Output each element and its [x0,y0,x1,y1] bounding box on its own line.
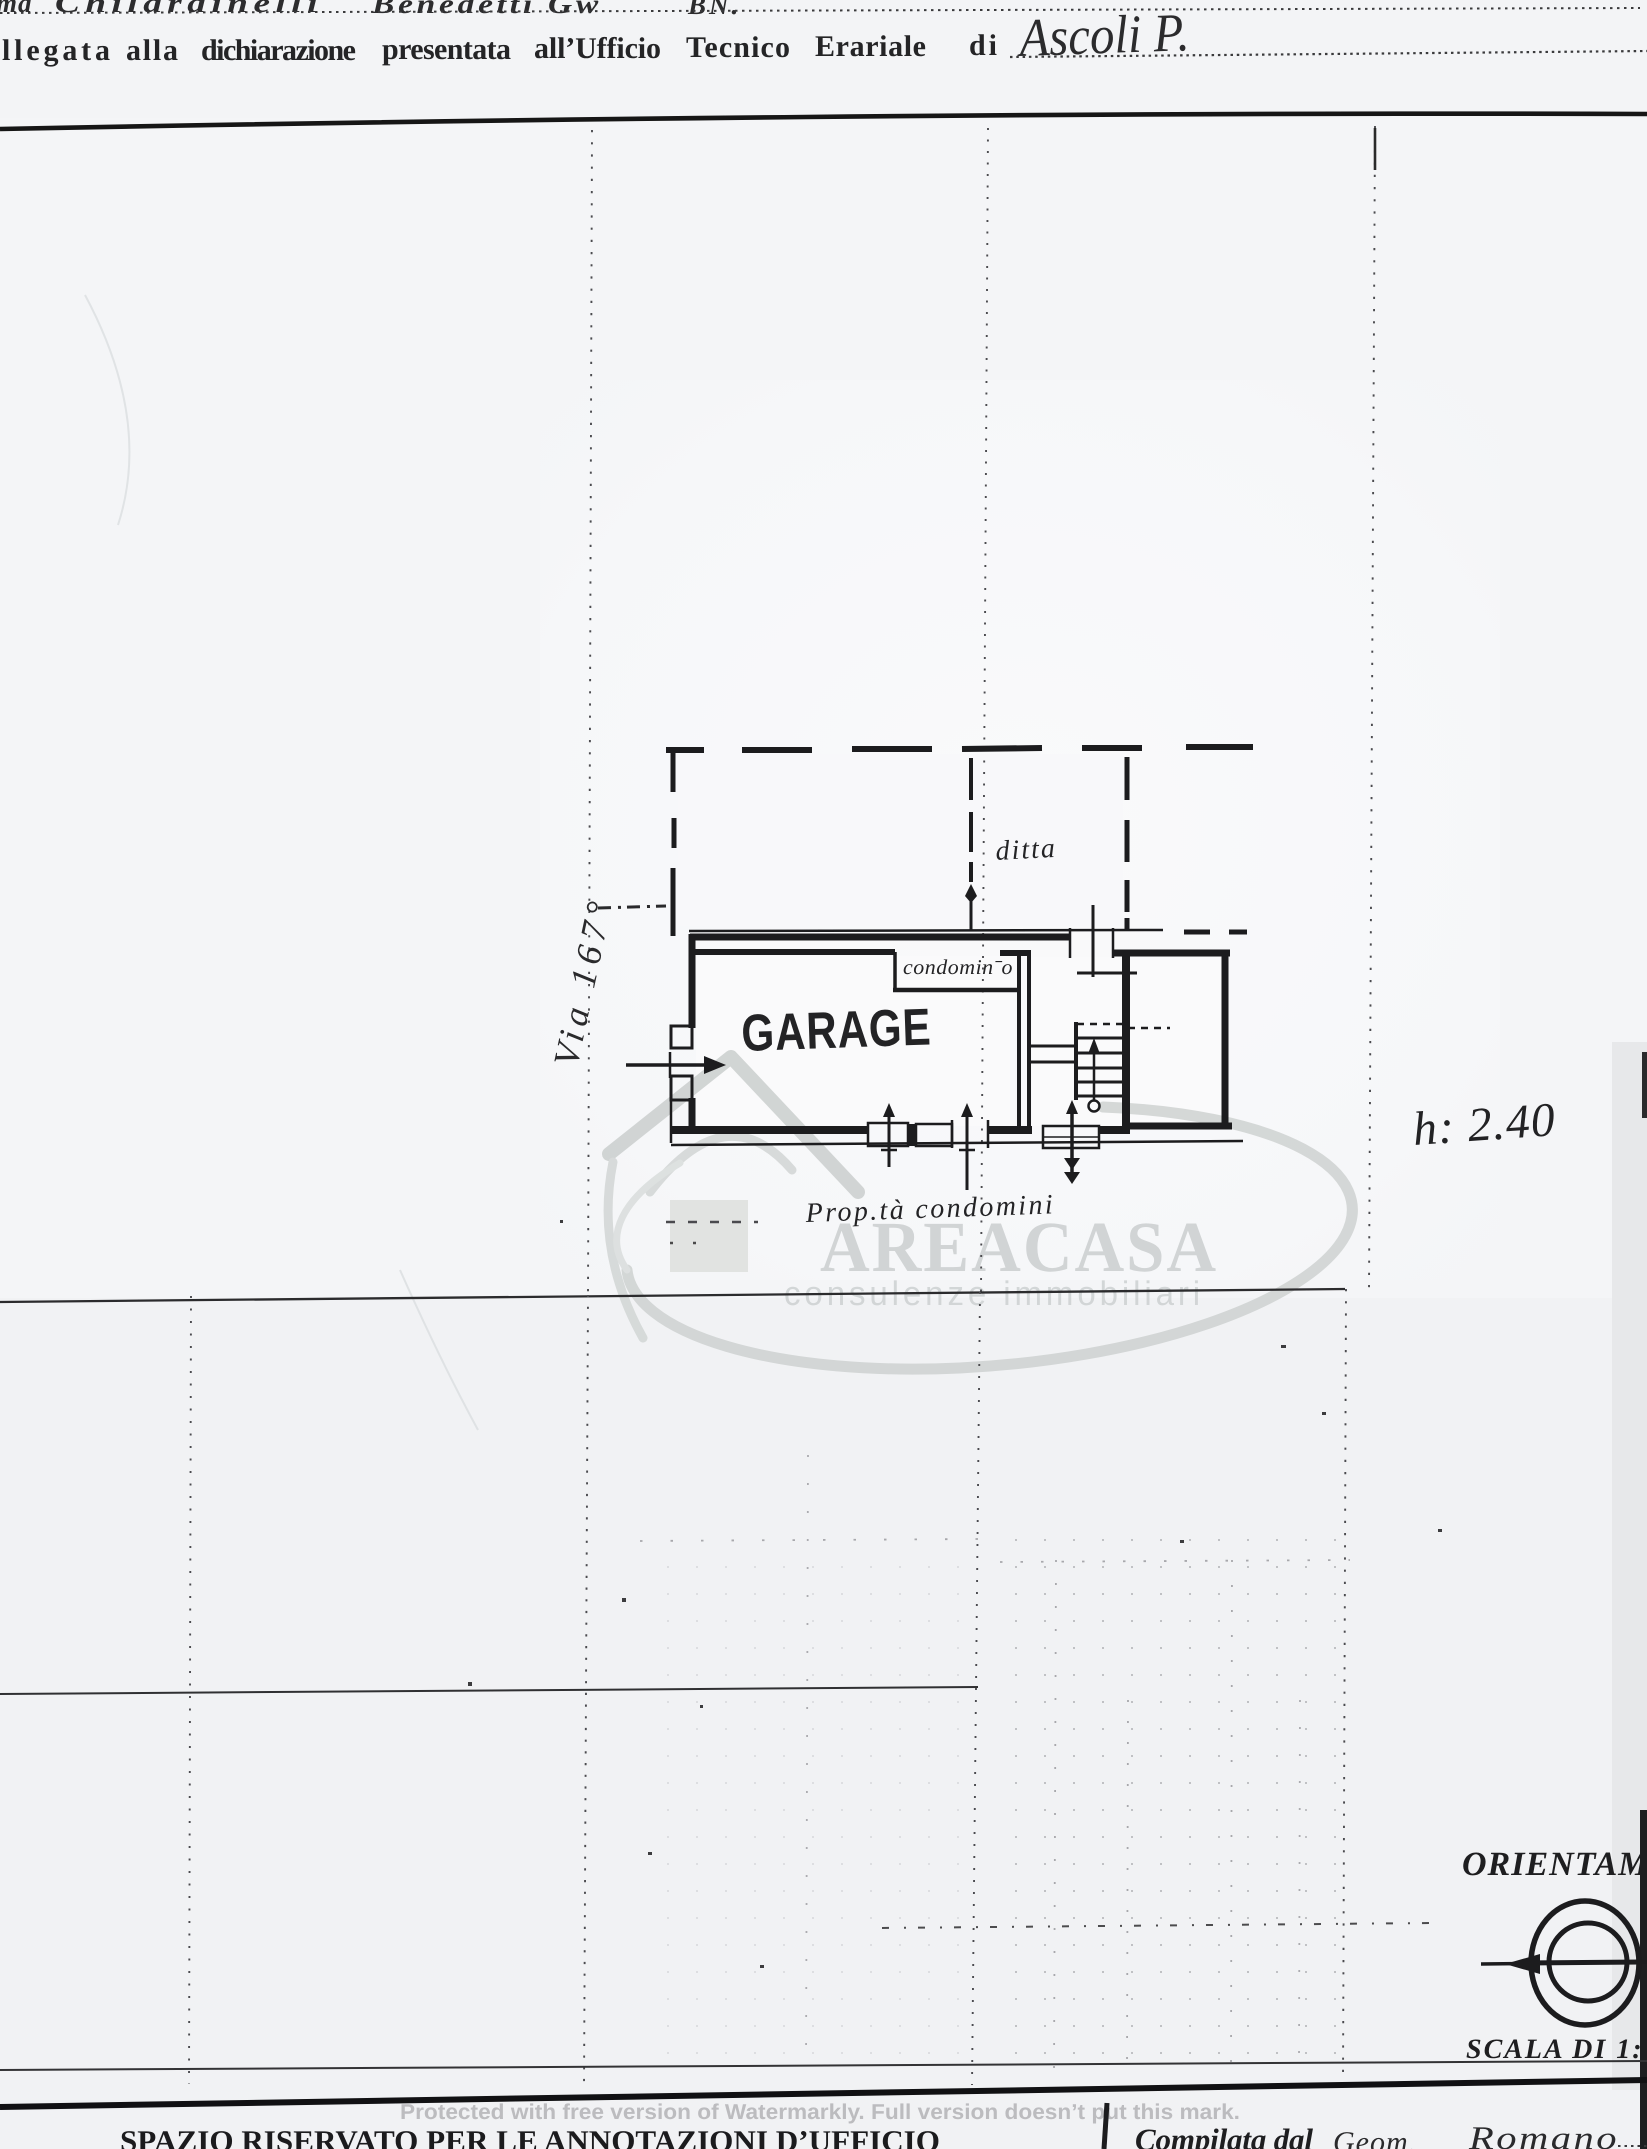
svg-text:ma: ma [0,0,33,18]
svg-text:Erariale: Erariale [815,30,926,63]
svg-text:di: di [969,29,997,62]
svg-text:ORIENTAM.: ORIENTAM. [1462,1846,1647,1883]
svg-text:SPAZIO RISERVATO PER LE ANNOTA: SPAZIO RISERVATO PER LE ANNOTAZIONI D’UF… [120,2125,940,2149]
svg-text:Geom.: Geom. [1333,2126,1417,2149]
svg-text:h: 2.40: h: 2.40 [1411,1093,1557,1156]
svg-text:Ascoli P.: Ascoli P. [1016,2,1191,68]
svg-text:Compilata dal: Compilata dal [1135,2122,1313,2149]
svg-text:Chilardinelli: Chilardinelli [55,0,323,18]
svg-text:dichiarazione: dichiarazione [201,34,356,67]
svg-text:Romano: Romano [1468,2121,1619,2149]
svg-text:GARAGE: GARAGE [740,998,932,1063]
svg-text:presentata: presentata [382,33,511,66]
svg-text:all’Ufficio: all’Ufficio [534,32,661,65]
svg-text:Tecnico: Tecnico [686,31,790,64]
svg-text:Benedetti Gw: Benedetti Gw [371,0,602,19]
svg-text:ditta: ditta [995,833,1058,867]
svg-text:Protected with free version of: Protected with free version of Watermark… [400,2100,1240,2124]
svg-text:alla: alla [126,34,178,67]
svg-text:condominˉo: condominˉo [903,955,1013,979]
